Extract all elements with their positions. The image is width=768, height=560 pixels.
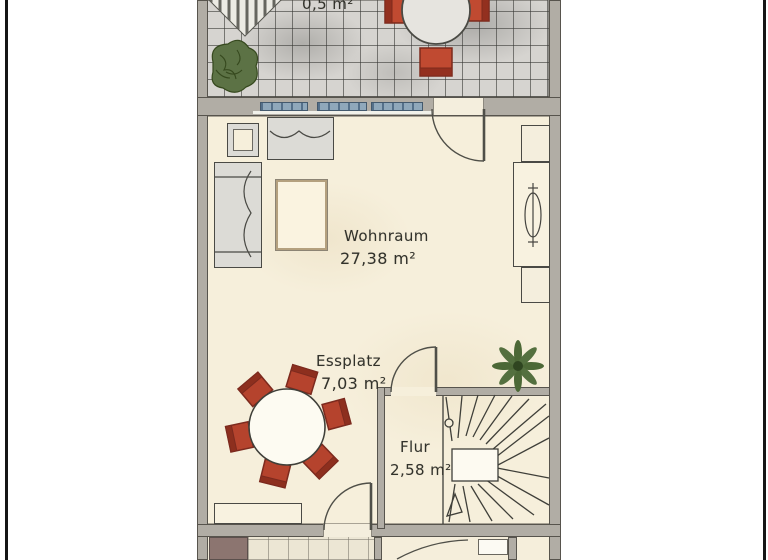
bottom-right-floor [517,537,549,560]
page-right-border [763,0,766,560]
bottom-partition-wall-left [374,537,382,560]
sideboard-tv-unit [513,162,550,267]
flur-name-label: Flur [400,438,430,456]
bottom-fixture [478,539,508,555]
window [317,102,367,111]
terrace-area-label: 0,5 m² [302,0,354,13]
window [371,102,423,111]
side-table-top [233,129,253,151]
flur-left-wall [377,387,385,529]
page-left-border [5,0,8,560]
outer-right-wall [549,0,561,560]
terrace-door-opening [433,98,484,115]
sofa-two-seat [267,117,334,160]
essplatz-name-label: Essplatz [316,352,381,370]
flur-door-opening [391,387,436,396]
kitchen-counter [209,537,248,560]
window-sill [253,111,433,114]
wall-unit-bottom-cabinet [521,267,550,303]
side-table [227,123,259,157]
bottom-door-opening [323,524,372,537]
wohnraum-area-label: 27,38 m² [340,249,416,268]
floor-plan-page: 0,5 m² Wohnraum 27,38 m² Essplatz 7,03 m… [0,0,768,560]
dining-sideboard [214,503,302,524]
sofa-three-seat [214,162,262,268]
bottom-partition-wall-right [508,537,517,560]
wohnraum-name-label: Wohnraum [344,227,429,245]
window [260,102,308,111]
essplatz-area-label: 7,03 m² [321,374,387,393]
coffee-table [276,180,327,250]
flur-area-label: 2,58 m² [390,461,452,479]
wall-unit-top-cabinet [521,125,550,162]
outer-left-wall [197,0,208,560]
kitchen-tile-floor [248,537,374,560]
